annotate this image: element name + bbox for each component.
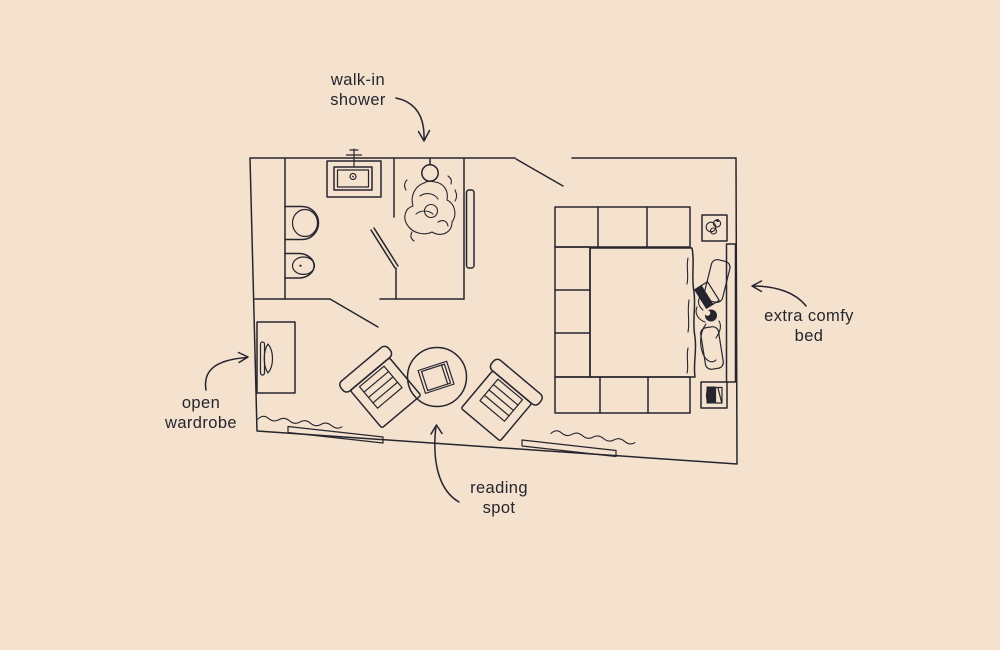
wardrobe-hanger-icon (261, 342, 273, 375)
shower-glass-panel (467, 190, 475, 268)
bed-platform-icon (555, 207, 690, 413)
sink-icon (327, 149, 381, 197)
wardrobe (257, 322, 295, 393)
curtain-left-icon (258, 416, 342, 428)
annotation-extra-comfy-bed: extra comfy bed (764, 307, 854, 346)
wardrobe-arrow-icon (205, 353, 248, 391)
books-nightstand-icon (701, 382, 727, 408)
bathroom-door-icon (371, 228, 398, 268)
annotation-reading-spot: reading spot (470, 479, 528, 518)
bathroom-walls (255, 159, 464, 327)
bed-arrow-icon (752, 281, 806, 306)
headboard-icon (727, 244, 736, 382)
annotation-walk-in-shower: walk-in shower (330, 71, 386, 110)
person-reading-icon (695, 282, 721, 362)
shower-head-icon (422, 159, 438, 181)
reading-arrow-icon (431, 425, 459, 502)
armchair-right-icon (457, 357, 544, 444)
armchair-left-icon (338, 344, 425, 431)
book-icon (418, 361, 454, 393)
room-walls (250, 158, 737, 464)
entry-door-icon (516, 159, 563, 186)
curtain-right-icon (551, 431, 635, 444)
bidet-icon (285, 254, 315, 279)
annotation-open-wardrobe: open wardrobe (165, 394, 237, 433)
floor-plan-page: walk-in shower extra comfy bed open ward… (0, 0, 1000, 650)
plant-nightstand-icon (702, 215, 727, 241)
mattress-icon (590, 248, 696, 377)
shower-arrow-icon (396, 98, 430, 141)
toilet-icon (285, 207, 319, 240)
person-showering-icon (405, 176, 457, 241)
round-table-icon (408, 348, 467, 407)
